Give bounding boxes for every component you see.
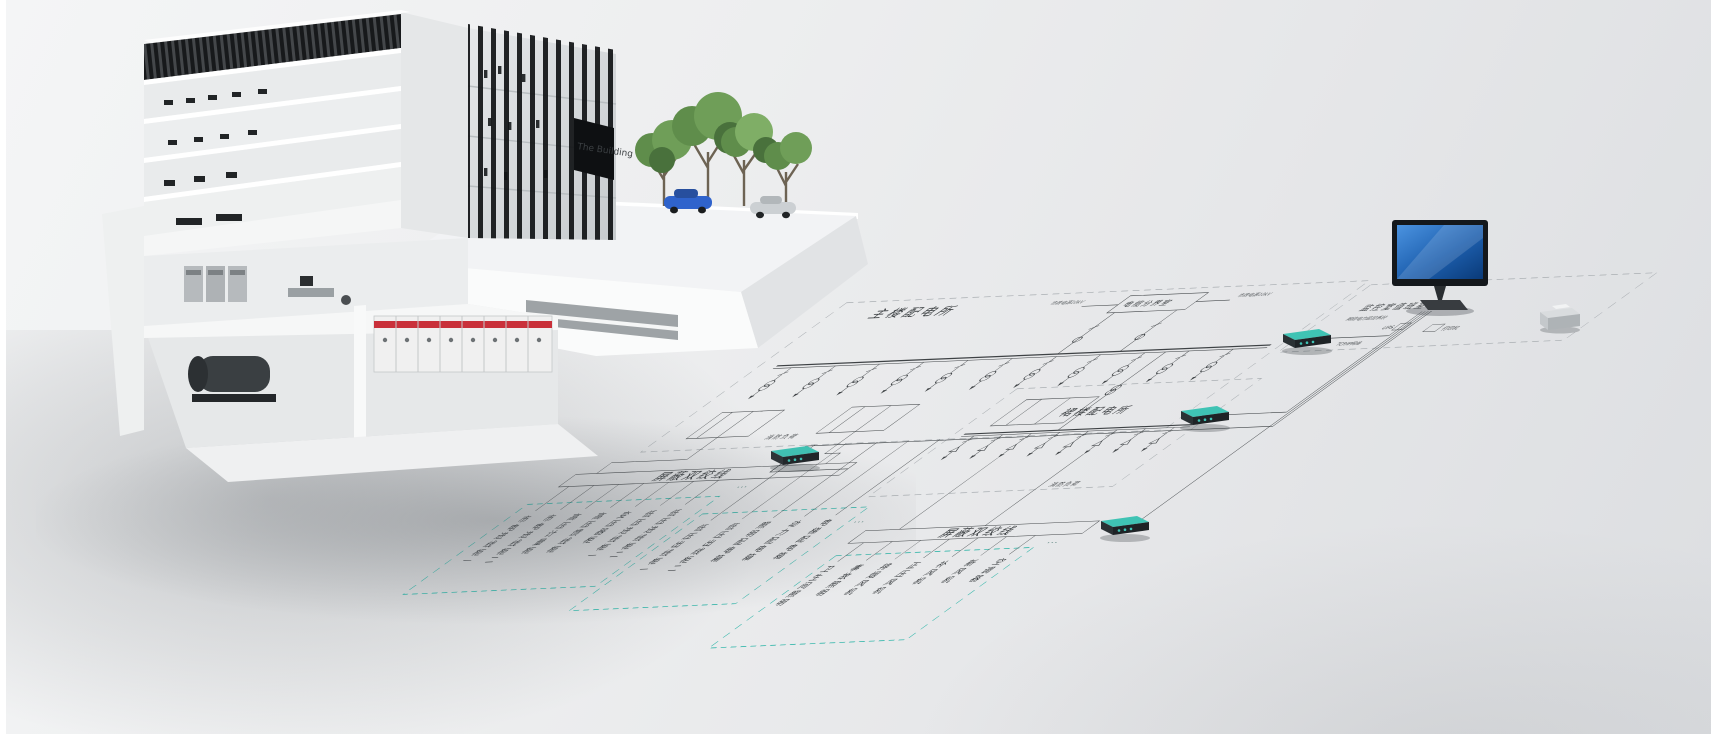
utility-incoming-left-label: 市政电源10kV xyxy=(1048,299,1088,306)
network-interface-label: TCP/IP网络 xyxy=(1332,341,1364,348)
ellipsis: ··· xyxy=(1041,539,1063,548)
cable-room-box: 电缆分界室 市政电源10kV 市政电源10kV xyxy=(1034,290,1278,316)
generator xyxy=(188,356,276,402)
gateway-device xyxy=(1097,511,1153,547)
scene: 主楼配电所 电缆分界室 市政电源10kV 市政电源10kV xyxy=(0,0,1711,734)
printer-icon xyxy=(1534,298,1586,338)
incoming-feeders xyxy=(1054,310,1180,354)
stair-block xyxy=(102,206,144,436)
cable-room-title: 电缆分界室 xyxy=(1118,298,1177,309)
building-illustration: The Building xyxy=(36,0,916,704)
trees xyxy=(635,92,812,212)
atrium: The Building xyxy=(468,24,634,240)
tower xyxy=(144,10,468,256)
monitor xyxy=(1384,218,1496,322)
printer-label: 打印机 xyxy=(1439,325,1463,332)
utility-incoming-right-label: 市政电源10kV xyxy=(1235,291,1275,298)
basement xyxy=(144,304,558,448)
gateway-device xyxy=(1279,324,1335,360)
fire-load-podium-label: 消防负荷 xyxy=(1046,480,1085,488)
podium-substation-title: 裙楼配电所 xyxy=(1054,405,1137,419)
gateway-device xyxy=(1177,401,1233,437)
shielded-pair-2-label: 屏蔽双绞线 xyxy=(934,524,1024,539)
switchgear-row xyxy=(374,316,552,372)
podium-substation-region: 裙楼配电所 消防负荷 xyxy=(868,346,1306,497)
monitor-base xyxy=(1420,300,1468,310)
monitor-stand xyxy=(1434,286,1446,300)
